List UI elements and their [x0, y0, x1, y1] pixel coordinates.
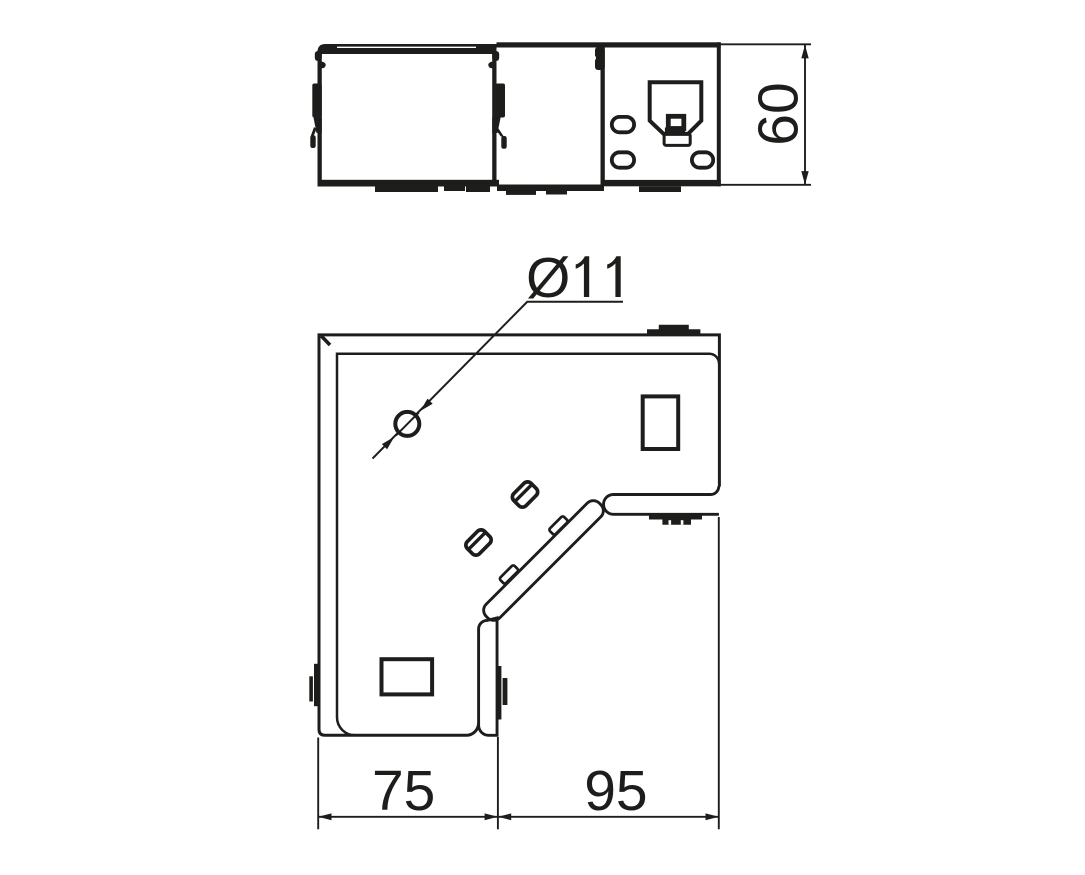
svg-text:75: 75 [372, 759, 435, 823]
svg-text:95: 95 [584, 759, 647, 823]
svg-text:Ø: Ø [526, 246, 570, 310]
svg-text:60: 60 [746, 82, 810, 145]
